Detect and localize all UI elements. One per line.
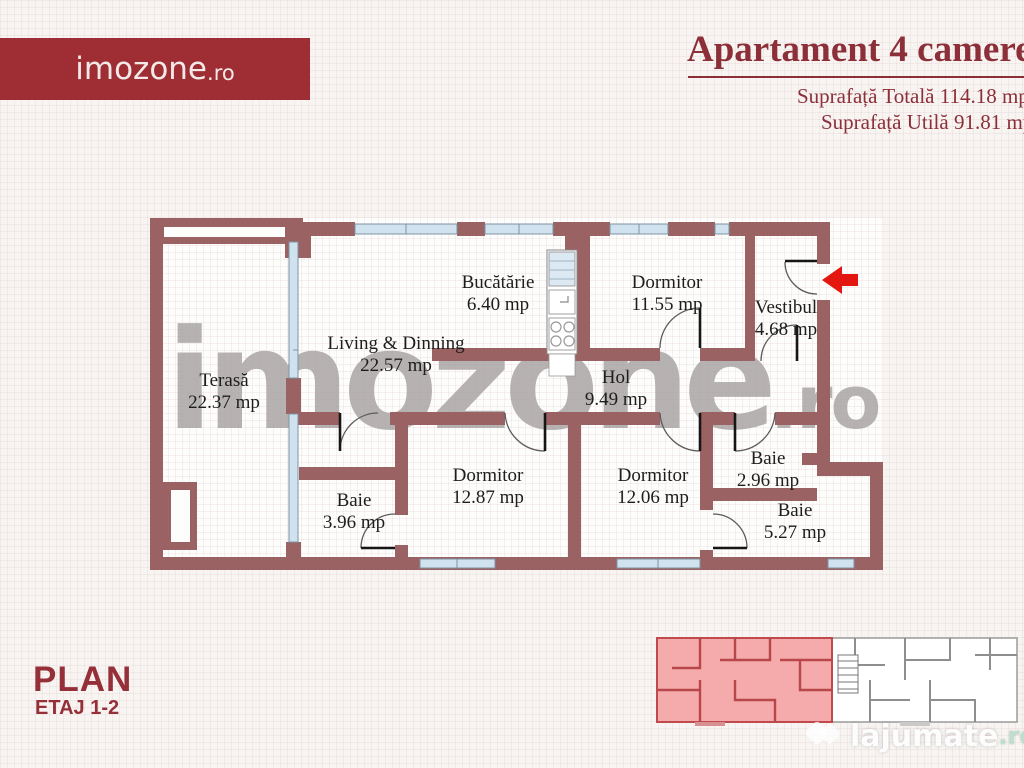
room-label-living: Living & Dinning22.57 mp: [327, 333, 464, 377]
listing-floorplan-page: { "header": { "logo": { "name": "imozone…: [0, 0, 1024, 768]
logo-text: imozone: [75, 51, 207, 87]
title-underline: [688, 76, 1024, 78]
imozone-logo: imozone.ro: [0, 38, 310, 100]
logo-tld: .ro: [207, 61, 235, 85]
room-label-terasa: Terasă22.37 mp: [188, 370, 260, 414]
room-label-baie-1: Baie3.96 mp: [323, 490, 385, 534]
plan-label: PLAN: [33, 662, 132, 697]
room-label-baie-2: Baie2.96 mp: [737, 448, 799, 492]
room-label-dormitor-1: Dormitor11.55 mp: [631, 272, 702, 316]
lajumate-watermark: lajumate.ro: [800, 716, 1024, 756]
total-area-text: Suprafață Totală 114.18 mp: [797, 84, 1024, 109]
usable-area-text: Suprafață Utilă 91.81 mp: [821, 110, 1024, 135]
page-title: Apartament 4 camere: [687, 28, 1024, 71]
room-label-baie-3: Baie5.27 mp: [764, 500, 826, 544]
room-label-hol: Hol9.49 mp: [585, 367, 647, 411]
room-label-dormitor-3: Dormitor12.06 mp: [617, 465, 689, 509]
room-label-dormitor-2: Dormitor12.87 mp: [452, 465, 524, 509]
room-label-bucatarie: Bucătărie6.40 mp: [462, 272, 535, 316]
room-label-vestibul: Vestibul4.68 mp: [755, 297, 817, 341]
floor-label: ETAJ 1-2: [35, 698, 119, 718]
lajumate-logo-icon: [800, 716, 846, 756]
